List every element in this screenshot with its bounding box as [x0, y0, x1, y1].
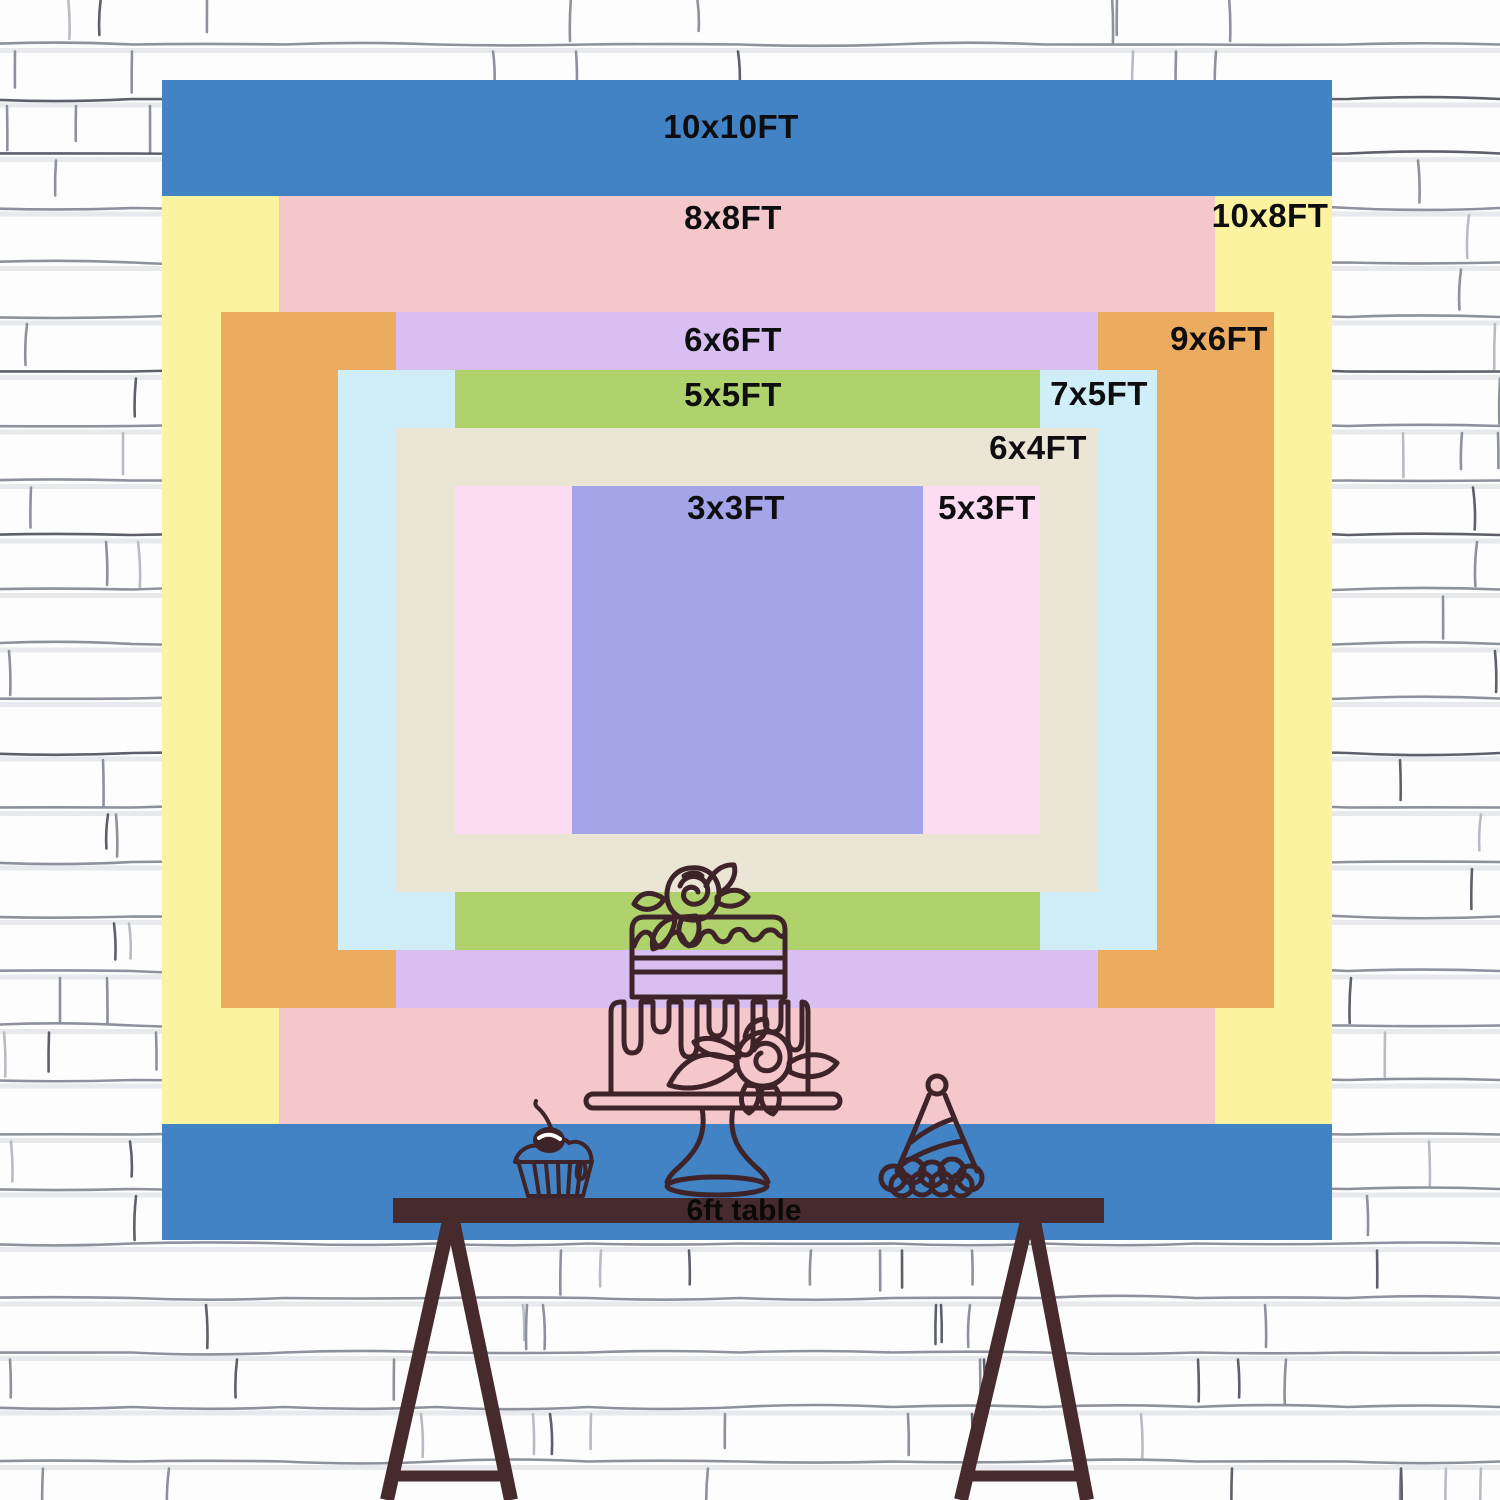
size-label-7x5: 7x5FT — [1050, 375, 1148, 413]
size-rect-3x3 — [572, 486, 923, 834]
backdrop-size-chart: 10x10FT10x8FT8x8FT9x6FT6x6FT7x5FT5x5FT6x… — [0, 0, 1500, 1500]
size-label-5x3: 5x3FT — [938, 489, 1036, 527]
size-label-6x6: 6x6FT — [684, 321, 782, 359]
table — [387, 1198, 1104, 1500]
table-label: 6ft table — [686, 1194, 801, 1228]
size-label-5x5: 5x5FT — [684, 376, 782, 414]
size-label-10x10: 10x10FT — [663, 108, 799, 146]
size-label-8x8: 8x8FT — [684, 199, 782, 237]
size-label-6x4: 6x4FT — [989, 429, 1087, 467]
backdrop-stack: 10x10FT10x8FT8x8FT9x6FT6x6FT7x5FT5x5FT6x… — [162, 80, 1332, 1240]
table-left-trestle-legs — [387, 1221, 511, 1500]
table-right-trestle-legs — [961, 1221, 1087, 1500]
size-label-10x8: 10x8FT — [1212, 197, 1329, 235]
size-label-3x3: 3x3FT — [687, 489, 785, 527]
size-label-9x6: 9x6FT — [1170, 320, 1268, 358]
